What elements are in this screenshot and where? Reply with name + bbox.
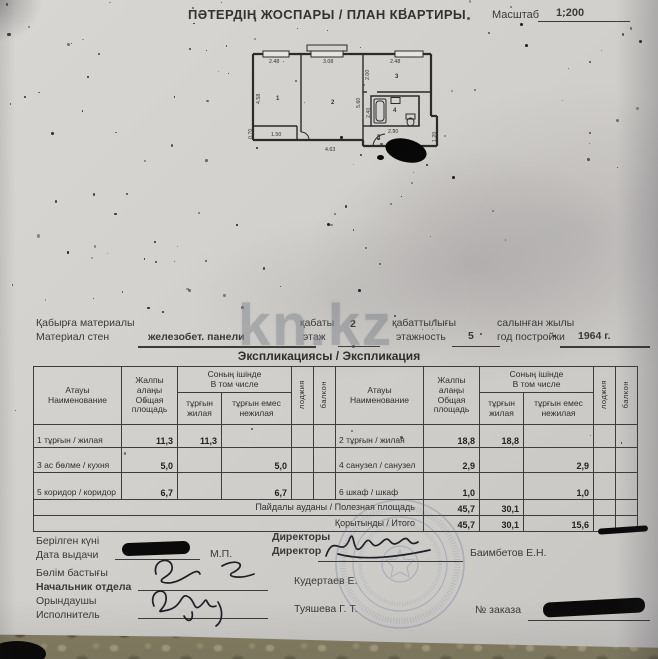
director-name: Баимбетов Е.Н. [470,548,547,560]
living-area-cell: 11,3 [178,425,222,448]
header-nonliving-left: тұрғын емеснежилая [222,393,292,425]
room-numbers: 1 2 3 4 5 [276,74,399,141]
header-nonliving-right: тұрғын емеснежилая [524,393,594,425]
header-loggia-left: лоджия [292,367,314,425]
wall-material-value: железобет. панели [148,331,245,343]
dim-kitchen-h: 2.00 [365,70,371,80]
header-balcony-right: балкон [616,367,638,425]
header-including-left: Соның ішіндеВ том числе [178,367,292,393]
issue-date-label-ru: Дата выдачи [36,550,98,562]
living-area-cell [480,448,524,473]
header-loggia-right: лоджия [594,367,616,425]
nonliving-area-cell [222,425,292,448]
grand-nonliving-cell: 15,6 [524,516,594,532]
wall-material-label-kk: Қабырға материалы [36,318,135,330]
dim-top-mid: 3.08 [323,59,333,65]
ink-dot [377,155,384,160]
dim-mid-vert: 5.60 [356,98,362,108]
total-area-cell: 18,8 [424,425,480,448]
executor-label-kk: Орындаушы [36,596,96,608]
dept-head-label-ru: Начальник отдела [36,582,131,594]
scale-underline [538,21,630,22]
dim-bath-h: 2.40 [366,108,372,118]
nonliving-area-cell: 1,0 [524,473,594,500]
year-built-label-ru: год постройки [497,332,565,344]
living-area-cell [178,448,222,473]
header-name-right: АтауыНаименование [336,367,424,425]
executor-label-ru: Исполнитель [36,610,100,622]
order-underline [528,620,650,621]
scale-label: Масштаб [492,9,539,21]
windows [263,45,423,57]
table-row: 1 тұрғын / жилая 11,3 11,3 2 тұрғын / жи… [34,425,638,448]
nonliving-area-cell: 6,7 [222,473,292,500]
header-total-left: Жалпы алаңыОбщая площадь [122,367,178,425]
header-including-right: Соның ішіндеВ том числе [480,367,594,393]
issue-date-label-kk: Берілген күні [36,536,99,548]
room-3-label: 3 [395,74,399,80]
nonliving-area-cell [524,425,594,448]
floors-underline [452,346,500,347]
room-5-label: 5 [377,135,381,141]
room-4-label: 4 [393,108,397,114]
grand-living-cell: 30,1 [480,516,524,532]
room-2-label: 2 [331,100,335,106]
living-area-cell [178,473,222,500]
total-area-cell: 11,3 [122,425,178,448]
floors-total-value: 5 [468,330,474,342]
floors-total-label-kk: қабаттылығы [392,318,456,330]
dim-step: 1.20 [432,132,438,142]
nonliving-area-cell: 2,9 [524,448,594,473]
dept-head-label-kk: Бөлім бастығы [36,568,108,580]
year-underline [560,346,650,348]
room-name-cell: 5 коридор / коридор [34,473,122,500]
scale-value: 1:200 [556,7,584,19]
scanned-floor-plan-document: { "colors": {"paper":"#d3d1cd","ink":"#3… [0,0,658,659]
inner-walls [253,54,431,140]
dim-closet-h: 0.70 [248,129,254,139]
dim-top-right: 2.48 [390,59,400,65]
table-row: 3 ас бөлме / кухня 5,0 5,0 4 санузел / с… [34,448,638,473]
living-area-cell: 18,8 [480,425,524,448]
year-built-label-kk: салынған жылы [497,318,574,330]
living-area-cell [480,473,524,500]
header-living-right: тұрғынжилая [480,393,524,425]
document-title: ПӘТЕРДІҢ ЖОСПАРЫ / ПЛАН КВАРТИРЫ [188,7,466,22]
room-name-cell: 3 ас бөлме / кухня [34,448,122,473]
header-balcony-left: балкон [314,367,336,425]
useful-living-cell: 30,1 [480,500,524,516]
sink-icon [391,98,400,104]
room-name-cell: 4 санузел / санузел [336,448,424,473]
floors-total-label-ru: этажность [396,332,446,344]
wall-material-label-ru: Материал стен [36,332,109,344]
order-number-label: № заказа [475,605,521,617]
dim-bottom-left: 4.63 [325,147,335,153]
room-door-arc [301,132,309,139]
dim-closet-w: 1.50 [271,132,281,138]
room-name-cell: 1 тұрғын / жилая [34,425,122,448]
round-stamp [325,492,475,637]
executor-signature [138,582,268,630]
nonliving-area-cell: 5,0 [222,448,292,473]
total-area-cell: 2,9 [424,448,480,473]
dim-top-left: 2.48 [269,59,279,65]
header-living-left: тұрғынжилая [178,393,222,425]
kn-kz-watermark: kn.kz [238,292,393,359]
room-1-label: 1 [276,96,280,102]
director-label-ru: Директор [272,546,321,558]
dim-corridor: 2.90 [388,129,398,135]
total-area-cell: 6,7 [122,473,178,500]
header-total-right: Жалпы алаңыОбщая площадь [424,367,480,425]
header-name-left: АтауыНаименование [34,367,122,425]
redacted-issue-date [122,541,190,556]
year-built-value: 1964 г. [578,330,611,342]
room-name-cell: 2 тұрғын / жилая [336,425,424,448]
total-area-cell: 5,0 [122,448,178,473]
dim-left: 4.58 [256,94,262,104]
